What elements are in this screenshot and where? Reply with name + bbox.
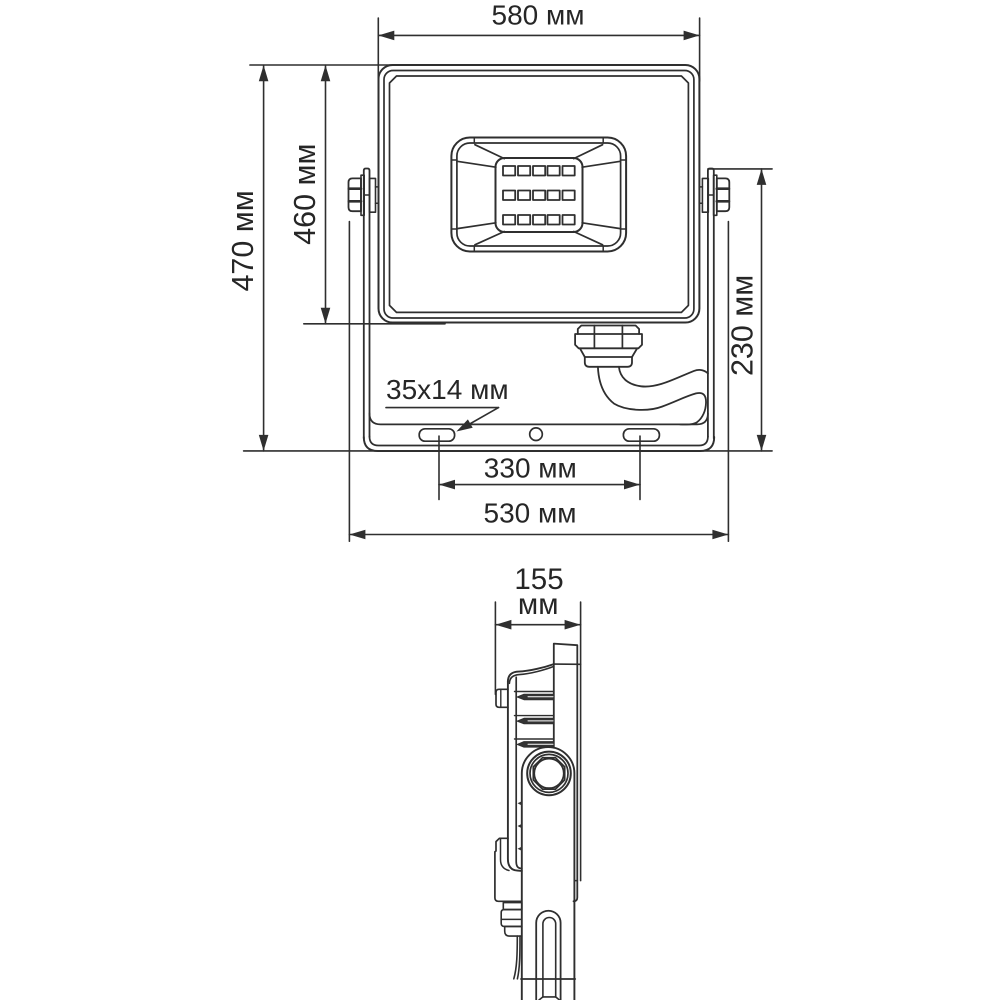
svg-text:580 мм: 580 мм [492, 0, 585, 31]
svg-text:460 мм: 460 мм [288, 144, 322, 245]
svg-text:35x14 мм: 35x14 мм [386, 374, 509, 405]
svg-text:470 мм: 470 мм [226, 190, 260, 291]
svg-text:530 мм: 530 мм [484, 497, 577, 528]
svg-text:мм: мм [518, 588, 559, 621]
svg-text:330 мм: 330 мм [484, 453, 577, 484]
svg-text:230 мм: 230 мм [725, 275, 759, 376]
